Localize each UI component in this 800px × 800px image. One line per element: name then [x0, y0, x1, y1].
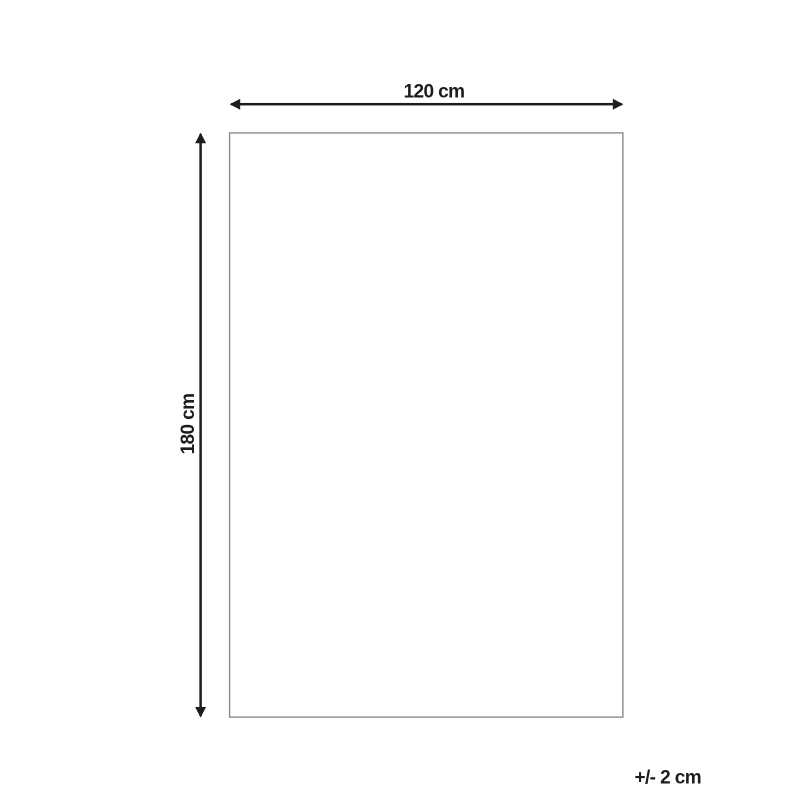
- svg-text:120 cm: 120 cm: [404, 82, 465, 103]
- svg-text:+/- 2 cm: +/- 2 cm: [635, 768, 702, 789]
- svg-text:180 cm: 180 cm: [178, 394, 199, 455]
